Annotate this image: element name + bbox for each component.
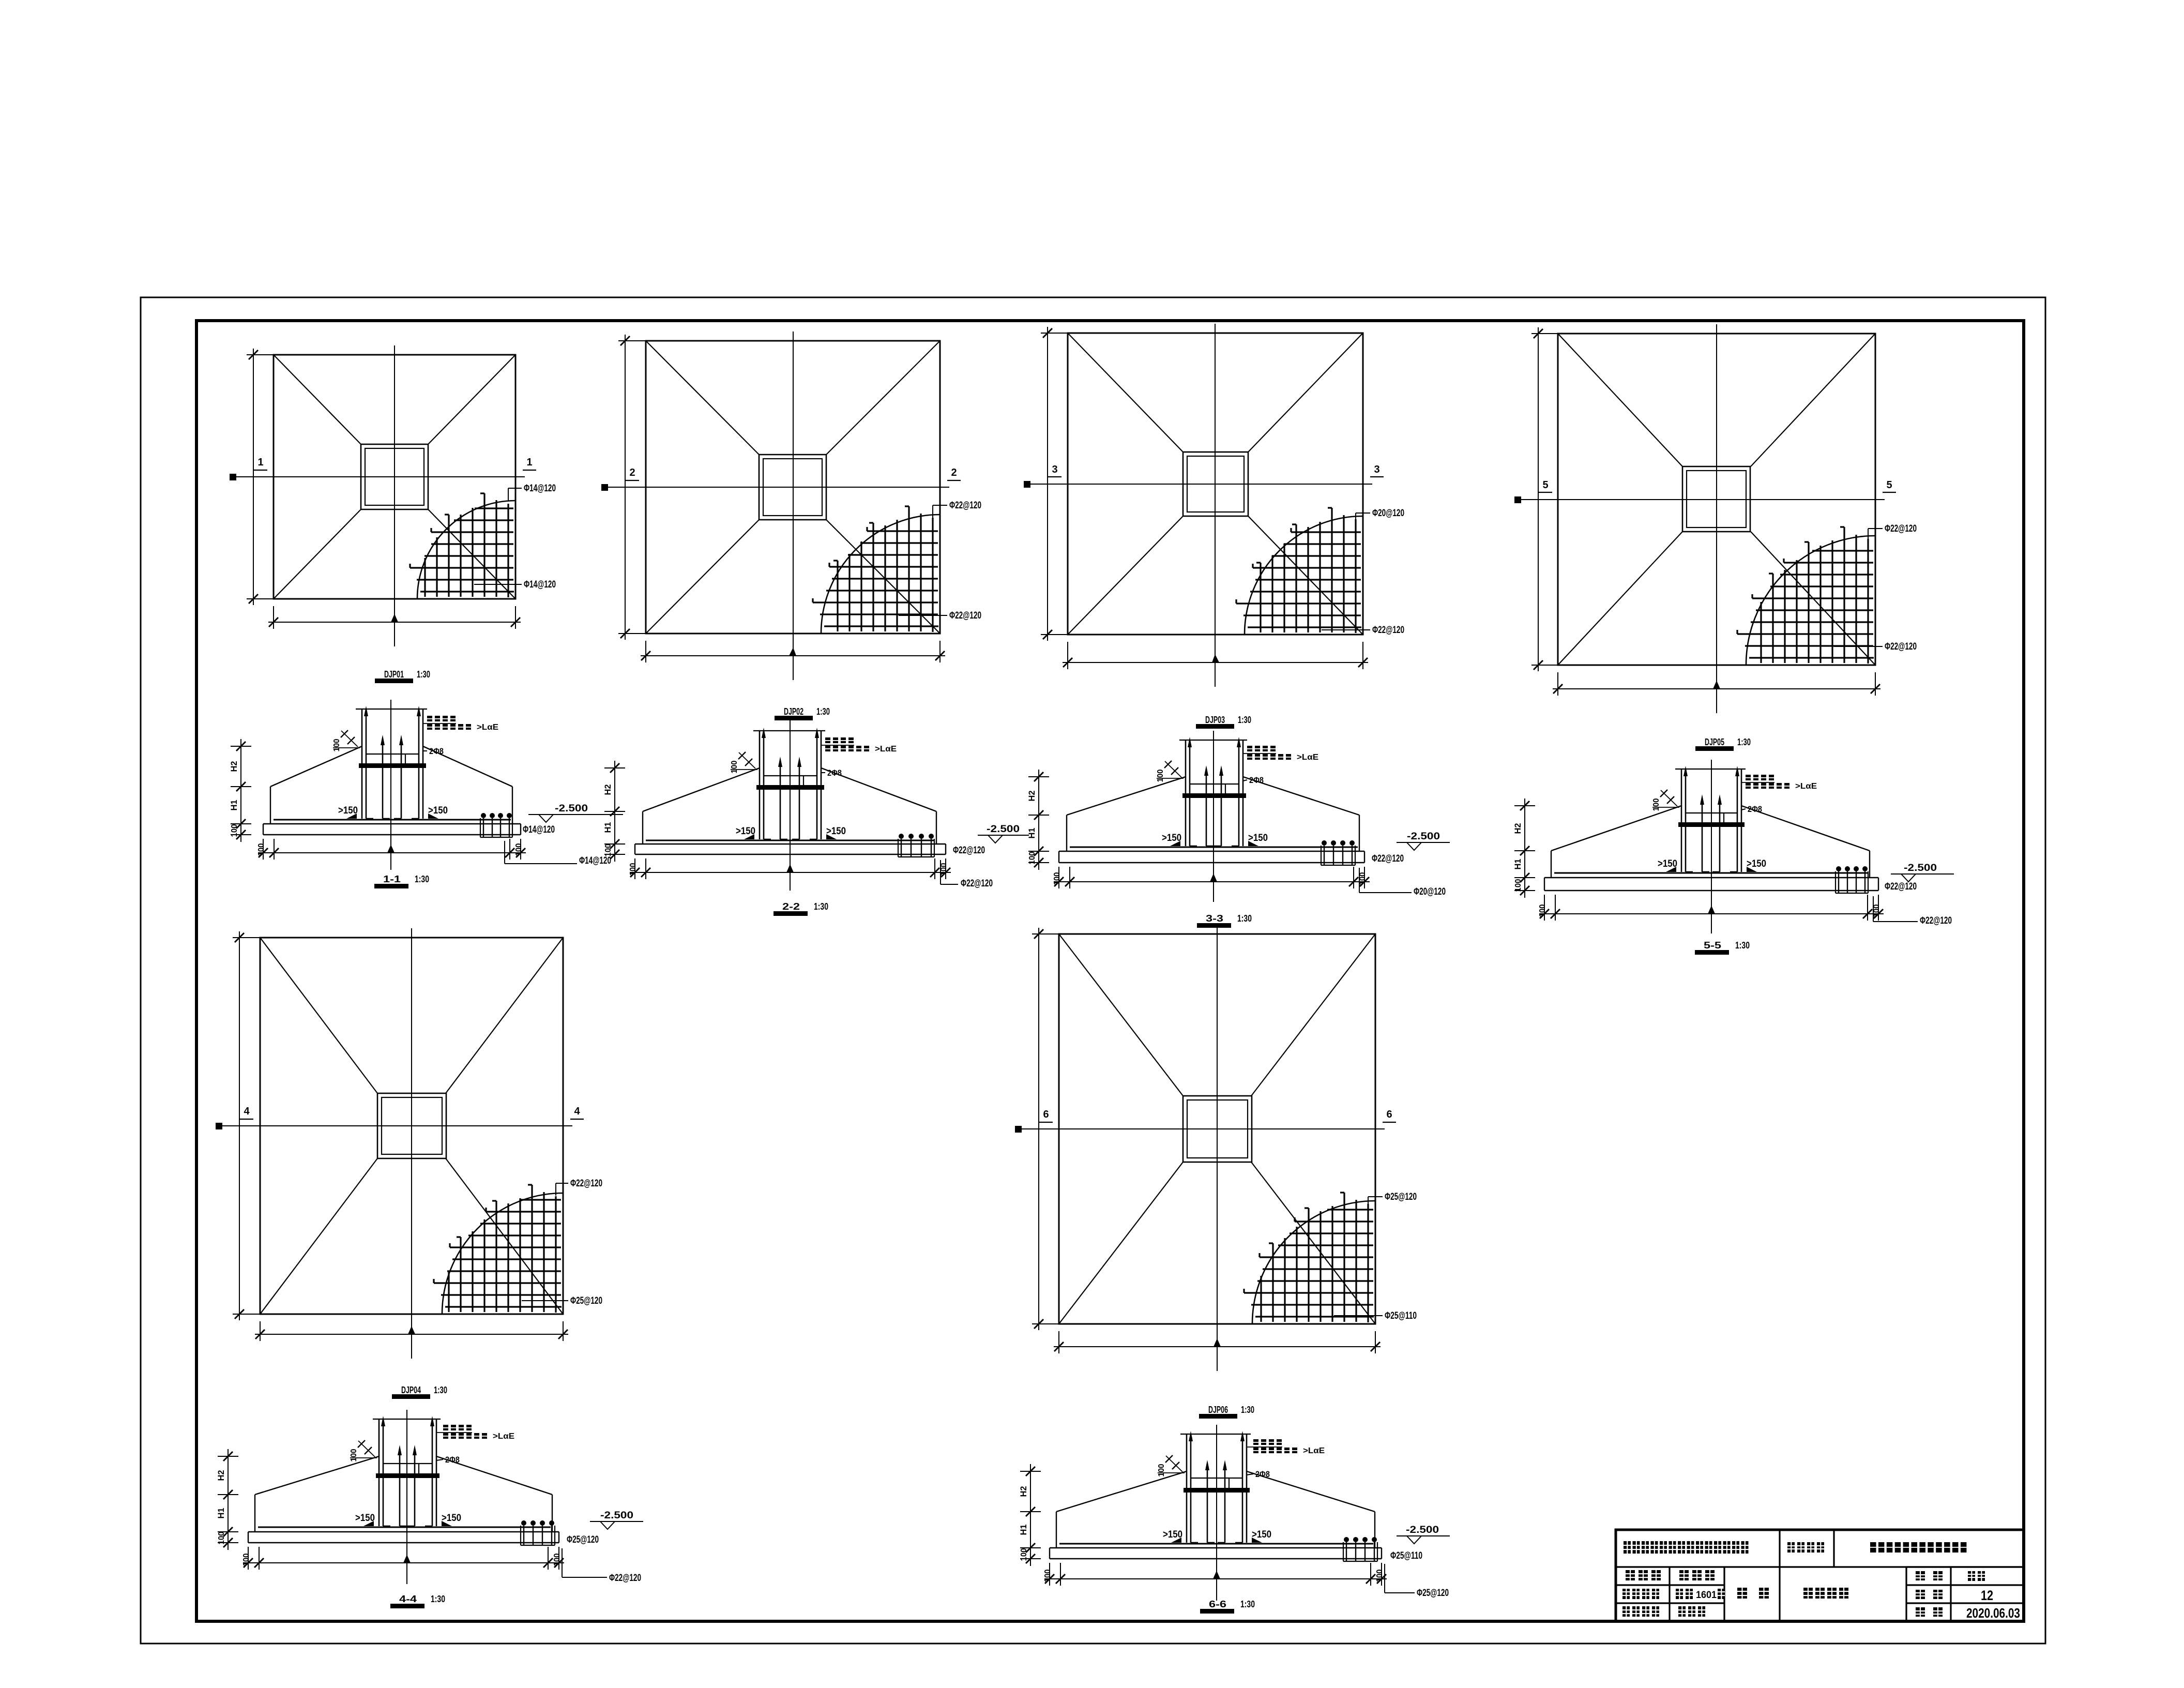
svg-text:H2: H2: [216, 1470, 226, 1481]
svg-text:DJP02: DJP02: [784, 706, 803, 717]
svg-text:H1: H1: [216, 1508, 226, 1519]
svg-text:1:30: 1:30: [1238, 715, 1251, 725]
svg-text:Φ22@120: Φ22@120: [1372, 853, 1404, 864]
svg-text:1: 1: [526, 457, 532, 468]
svg-text:100: 100: [730, 760, 739, 773]
svg-text:>LαE: >LαE: [1297, 753, 1318, 762]
svg-text:1:30: 1:30: [1237, 913, 1252, 924]
svg-text:Φ22@120: Φ22@120: [609, 1573, 641, 1584]
svg-text:2: 2: [629, 467, 635, 478]
svg-text:2020.06.03: 2020.06.03: [1966, 1605, 2020, 1621]
svg-text:Φ20@120: Φ20@120: [1414, 886, 1446, 897]
svg-text:>150: >150: [1248, 833, 1268, 843]
svg-text:Φ22@120: Φ22@120: [1885, 881, 1917, 892]
svg-text:2Φ8: 2Φ8: [445, 1455, 460, 1465]
svg-text:Φ22@120: Φ22@120: [949, 500, 981, 511]
svg-text:H1: H1: [603, 822, 613, 833]
svg-text:H1: H1: [1027, 828, 1037, 839]
svg-text:100: 100: [350, 1449, 358, 1461]
svg-text:Φ25@110: Φ25@110: [1390, 1550, 1422, 1561]
svg-text:100: 100: [1028, 851, 1037, 864]
svg-text:5: 5: [1886, 479, 1892, 491]
svg-text:Φ22@120: Φ22@120: [570, 1178, 602, 1189]
svg-text:-2.500: -2.500: [1406, 1525, 1439, 1535]
svg-text:DJP06: DJP06: [1208, 1405, 1228, 1415]
svg-text:Φ25@120: Φ25@120: [1385, 1192, 1417, 1202]
svg-text:2Φ8: 2Φ8: [1249, 775, 1264, 785]
svg-text:100: 100: [257, 843, 266, 856]
svg-text:6: 6: [1043, 1109, 1049, 1120]
svg-text:3: 3: [1374, 464, 1379, 475]
svg-text:-2.500: -2.500: [600, 1510, 633, 1521]
svg-text:Φ22@120: Φ22@120: [1885, 523, 1917, 534]
svg-text:>LαE: >LαE: [1303, 1446, 1325, 1455]
svg-text:1:30: 1:30: [814, 901, 828, 912]
svg-text:DJP01: DJP01: [384, 669, 404, 680]
svg-text:6: 6: [1386, 1109, 1392, 1120]
svg-text:Φ14@120: Φ14@120: [524, 579, 556, 590]
svg-text:100: 100: [242, 1553, 251, 1566]
svg-text:>150: >150: [826, 826, 846, 837]
svg-text:>150: >150: [442, 1513, 461, 1524]
svg-text:100: 100: [332, 739, 341, 751]
svg-text:100: 100: [1156, 769, 1165, 782]
svg-text:Φ22@120: Φ22@120: [961, 878, 993, 889]
svg-text:Φ20@120: Φ20@120: [1372, 508, 1404, 519]
svg-text:>150: >150: [1252, 1529, 1271, 1540]
svg-text:100: 100: [217, 1531, 226, 1544]
svg-text:1:30: 1:30: [1241, 1405, 1254, 1415]
svg-text:>LαE: >LαE: [875, 745, 897, 753]
svg-text:-2.500: -2.500: [987, 824, 1020, 835]
svg-text:1:30: 1:30: [1240, 1599, 1255, 1609]
svg-text:2-2: 2-2: [782, 901, 800, 912]
svg-text:100: 100: [1043, 1569, 1052, 1582]
svg-text:100: 100: [553, 1553, 562, 1566]
svg-text:DJP04: DJP04: [401, 1385, 421, 1395]
svg-text:100: 100: [1375, 1569, 1384, 1582]
svg-text:>150: >150: [428, 805, 448, 816]
svg-text:H1: H1: [1513, 859, 1523, 870]
svg-text:>LαE: >LαE: [1795, 782, 1817, 791]
svg-text:Φ22@120: Φ22@120: [1885, 641, 1917, 652]
svg-text:H2: H2: [603, 785, 613, 795]
svg-text:3: 3: [1052, 464, 1057, 475]
svg-text:Φ25@120: Φ25@120: [570, 1295, 602, 1306]
svg-text:-2.500: -2.500: [555, 803, 588, 814]
svg-text:100: 100: [1053, 872, 1061, 885]
svg-text:4: 4: [244, 1106, 250, 1117]
svg-text:2: 2: [951, 467, 957, 478]
svg-text:12: 12: [1981, 1588, 1993, 1603]
svg-text:100: 100: [1020, 1548, 1028, 1561]
svg-text:Φ22@120: Φ22@120: [1920, 915, 1952, 926]
svg-text:100: 100: [604, 843, 613, 856]
svg-text:H2: H2: [1019, 1486, 1028, 1497]
svg-text:Φ22@120: Φ22@120: [953, 845, 985, 856]
svg-text:H1: H1: [1019, 1525, 1028, 1535]
svg-text:2Φ8: 2Φ8: [1255, 1469, 1270, 1479]
svg-text:1:30: 1:30: [1737, 737, 1751, 747]
svg-text:1: 1: [257, 457, 263, 468]
svg-text:5: 5: [1542, 479, 1548, 491]
svg-text:Φ22@120: Φ22@120: [949, 610, 981, 621]
svg-text:1:30: 1:30: [434, 1385, 447, 1395]
svg-text:4: 4: [574, 1106, 580, 1117]
svg-text:1-1: 1-1: [383, 874, 401, 884]
svg-text:H2: H2: [1513, 823, 1523, 834]
svg-text:Φ25@120: Φ25@120: [567, 1534, 599, 1545]
svg-text:100: 100: [1538, 904, 1547, 917]
svg-text:3-3: 3-3: [1206, 913, 1223, 924]
svg-text:>LαE: >LαE: [477, 723, 498, 732]
svg-text:1:30: 1:30: [816, 706, 830, 717]
svg-text:2Φ8: 2Φ8: [827, 768, 842, 778]
svg-text:4-4: 4-4: [399, 1594, 417, 1604]
svg-text:100: 100: [1514, 879, 1523, 892]
svg-text:-2.500: -2.500: [1407, 831, 1440, 842]
svg-text:H1: H1: [229, 800, 239, 811]
svg-text:100: 100: [514, 843, 523, 856]
svg-text:100: 100: [230, 824, 239, 837]
svg-text:1:30: 1:30: [1735, 940, 1750, 951]
svg-text:Φ14@120: Φ14@120: [524, 483, 556, 494]
svg-text:>LαE: >LαE: [493, 1432, 514, 1441]
svg-text:2Φ8: 2Φ8: [429, 746, 444, 756]
svg-text:1:30: 1:30: [431, 1594, 445, 1604]
svg-text:Φ25@110: Φ25@110: [1385, 1310, 1417, 1321]
svg-text:2Φ8: 2Φ8: [1748, 804, 1762, 814]
svg-text:-2.500: -2.500: [1904, 863, 1937, 873]
svg-text:H2: H2: [229, 761, 239, 772]
svg-text:6-6: 6-6: [1209, 1599, 1226, 1609]
svg-text:>150: >150: [338, 805, 358, 816]
svg-text:Φ14@120: Φ14@120: [523, 824, 555, 835]
svg-text:>150: >150: [1747, 858, 1766, 869]
svg-text:1:30: 1:30: [415, 874, 429, 884]
svg-text:1:30: 1:30: [417, 669, 430, 680]
svg-text:DJP03: DJP03: [1205, 715, 1225, 725]
svg-text:5-5: 5-5: [1704, 940, 1721, 951]
svg-text:Φ22@120: Φ22@120: [1372, 625, 1404, 636]
svg-text:100: 100: [1157, 1464, 1166, 1476]
svg-text:100: 100: [629, 863, 638, 876]
svg-text:1601: 1601: [1696, 1590, 1717, 1601]
svg-text:H2: H2: [1027, 791, 1037, 802]
svg-text:100: 100: [1652, 798, 1661, 811]
svg-text:Φ25@120: Φ25@120: [1417, 1588, 1449, 1599]
svg-text:DJP05: DJP05: [1705, 737, 1724, 747]
